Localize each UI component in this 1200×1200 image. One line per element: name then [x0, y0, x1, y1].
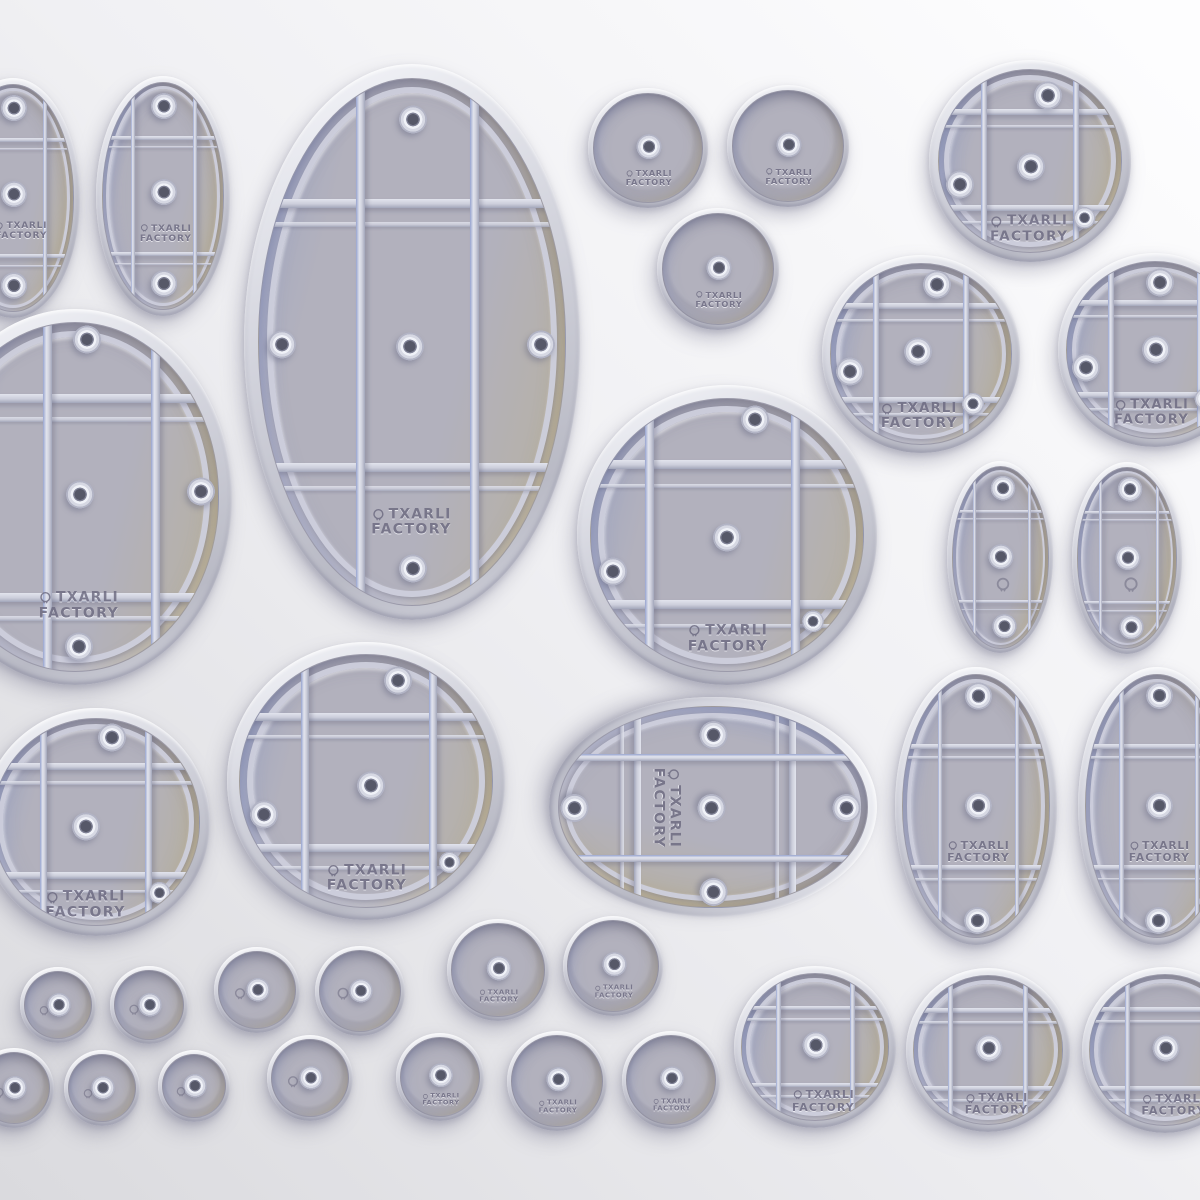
alien-head-icon — [990, 215, 1003, 228]
support-rib-horizontal — [789, 707, 796, 906]
alien-head-icon — [39, 592, 52, 605]
brand-logo: TXARLIFACTORY — [792, 1089, 855, 1114]
support-rib-horizontal — [953, 510, 1048, 513]
alien-head-icon — [140, 224, 149, 233]
brand-line1: TXARLI — [1114, 398, 1189, 413]
support-rib-horizontal — [0, 394, 218, 403]
support-rib-vertical — [1195, 675, 1200, 938]
magnet-hole — [691, 789, 729, 827]
support-rib-vertical — [948, 976, 953, 1124]
brand-logo: TXARLIFACTORY — [965, 1093, 1029, 1118]
magnet-hole — [146, 267, 181, 302]
base-dish — [114, 970, 184, 1040]
brand-word-2: FACTORY — [881, 417, 958, 432]
alien-head-icon — [128, 1004, 140, 1016]
support-rib-horizontal — [914, 1086, 1062, 1091]
support-rib-horizontal — [1086, 865, 1200, 870]
round-base-mini-b1-cut — [0, 1048, 54, 1128]
brand-word-2: FACTORY — [140, 234, 192, 244]
magnet-hole — [656, 1063, 689, 1096]
support-rib-stub — [1086, 878, 1200, 881]
support-rib-vertical — [776, 974, 781, 1120]
round-base-mini-a3 — [214, 947, 300, 1033]
support-rib-horizontal — [1078, 601, 1177, 604]
magnet-hole — [68, 322, 106, 359]
alien-head-icon — [1129, 841, 1139, 851]
base-dish: TXARLIFACTORY — [567, 920, 659, 1012]
base-floor: TXARLIFACTORY — [913, 975, 1063, 1125]
brand-word-2: FACTORY — [947, 852, 1010, 864]
magnet-hole — [984, 541, 1017, 574]
brand-word-2: FACTORY — [792, 1101, 855, 1113]
magnet-hole — [632, 131, 666, 165]
support-rib-horizontal — [1086, 744, 1200, 749]
brand-word-1: TXARLI — [1155, 1093, 1200, 1106]
support-rib-stub — [103, 146, 224, 148]
base-floor: TXARLIFACTORY — [258, 78, 566, 606]
support-rib-stub — [953, 518, 1048, 520]
support-rib-stub — [775, 707, 779, 906]
support-rib-vertical — [131, 83, 135, 310]
magnet-hole — [959, 904, 996, 939]
base-dish: TXARLIFACTORY — [593, 93, 703, 203]
brand-icon-mark — [287, 1073, 300, 1086]
alien-head-icon — [539, 1100, 545, 1106]
support-rib-horizontal — [0, 138, 73, 142]
brand-word-1: TXARLI — [63, 890, 126, 906]
round-base-grid-lower-left-cut: TXARLIFACTORY — [0, 708, 210, 936]
magnet-hole — [61, 477, 99, 515]
magnet-hole — [1137, 332, 1175, 370]
magnet-hole — [598, 949, 631, 982]
magnet-hole — [146, 176, 181, 211]
support-rib-horizontal — [591, 460, 864, 469]
brand-logo: TXARLIFACTORY — [765, 167, 812, 185]
alien-head-icon — [1114, 400, 1126, 412]
magnet-hole — [772, 129, 806, 163]
brand-line1: TXARLI — [39, 591, 119, 607]
base-floor: TXARLIFACTORY — [0, 718, 200, 927]
brand-logo: TXARLIFACTORY — [39, 591, 119, 622]
alien-head-icon — [947, 841, 957, 851]
base-dish — [319, 950, 401, 1032]
support-rib-horizontal — [0, 254, 73, 258]
support-rib-stub — [0, 781, 199, 785]
oval-base-large-left-cut: TXARLIFACTORY — [0, 309, 232, 685]
magnet-hole — [352, 768, 390, 806]
support-rib-stub — [1078, 519, 1177, 521]
brand-icon-mark — [234, 985, 247, 998]
magnet-hole — [708, 520, 746, 558]
magnet-hole — [263, 327, 301, 365]
brand-line1: TXARLI — [371, 507, 451, 523]
support-rib-horizontal — [903, 744, 1049, 749]
brand-icon-mark — [38, 1001, 49, 1012]
round-base-grid-lower-left-2: TXARLIFACTORY — [227, 642, 505, 920]
brand-logo: TXARLIFACTORY — [595, 985, 634, 1000]
magnet-hole — [425, 1060, 457, 1092]
base-dish: TXARLIFACTORY — [400, 1037, 480, 1117]
brand-word-2: FACTORY — [990, 229, 1068, 244]
base-dish: TXARLIFACTORY — [451, 923, 544, 1016]
brand-logo: TXARLIFACTORY — [881, 402, 958, 432]
oval-base-small-edge-left: TXARLIFACTORY — [0, 78, 80, 318]
support-rib-stub — [742, 1018, 888, 1021]
magnet-hole — [1111, 542, 1145, 576]
brand-icon-mark — [128, 1001, 140, 1013]
base-floor: TXARLIFACTORY — [938, 69, 1123, 254]
magnet-hole — [379, 663, 417, 701]
base-floor: TXARLIFACTORY — [741, 973, 889, 1121]
magnet-hole — [67, 809, 105, 847]
base-dish — [24, 971, 92, 1039]
brand-word-2: FACTORY — [688, 639, 768, 655]
brand-word-1: TXARLI — [1130, 398, 1189, 413]
alien-head-icon — [82, 1088, 93, 1099]
brand-word-2: FACTORY — [0, 231, 47, 241]
support-rib-vertical — [559, 754, 866, 761]
magnet-hole — [1148, 1031, 1185, 1068]
support-rib-vertical — [43, 85, 47, 312]
brand-logo: TXARLIFACTORY — [688, 623, 768, 654]
magnet-hole — [558, 789, 591, 827]
brand-line1: TXARLI — [990, 214, 1068, 229]
brand-line1: TXARLI — [45, 890, 125, 906]
magnet-hole — [146, 90, 181, 125]
brand-word-1: TXARLI — [897, 402, 957, 417]
alien-head-icon — [995, 577, 1011, 593]
support-rib-vertical — [301, 655, 309, 907]
round-base-mini-b2 — [64, 1050, 140, 1126]
brand-line1: TXARLI — [0, 221, 47, 231]
magnet-hole — [391, 329, 429, 367]
alien-head-icon — [336, 987, 350, 1001]
brand-word-2: FACTORY — [626, 178, 673, 187]
round-base-plain-top-2: TXARLIFACTORY — [727, 85, 849, 207]
support-rib-vertical — [470, 79, 479, 605]
support-rib-stub — [620, 707, 624, 906]
alien-head-icon — [327, 864, 340, 877]
magnet-hole — [1141, 789, 1177, 825]
oval-base-small-top: TXARLIFACTORY — [96, 76, 230, 316]
round-base-small-b5: TXARLIFACTORY — [396, 1033, 484, 1121]
brand-word-1: TXARLI — [56, 591, 119, 607]
magnet-hole — [798, 1028, 835, 1065]
brand-logo: TXARLIFACTORY — [1141, 1093, 1200, 1118]
oval-base-medium-right-1: TXARLIFACTORY — [895, 667, 1057, 945]
brand-logo: TXARLIFACTORY — [45, 890, 125, 921]
oval-base-mini-right-1 — [947, 461, 1053, 653]
support-rib-horizontal — [1078, 511, 1177, 514]
magnet-hole — [798, 608, 828, 638]
brand-logo: TXARLIFACTORY — [1129, 840, 1190, 864]
magnet-hole — [918, 267, 956, 305]
oval-base-large-top: TXARLIFACTORY — [244, 64, 580, 620]
support-rib-horizontal — [634, 707, 641, 906]
alien-head-icon — [965, 1094, 976, 1105]
brand-logo: TXARLIFACTORY — [327, 863, 407, 894]
brand-word-2: FACTORY — [539, 1107, 578, 1115]
support-rib-vertical — [1156, 468, 1159, 649]
brand-word-2: FACTORY — [327, 879, 407, 895]
brand-word-2: FACTORY — [1141, 1106, 1200, 1119]
base-dish: TXARLIFACTORY — [511, 1035, 603, 1127]
brand-word-1: TXARLI — [705, 623, 768, 639]
round-base-grid-center-large: TXARLIFACTORY — [577, 385, 877, 685]
support-rib-horizontal — [259, 199, 565, 208]
brand-word-1: TXARLI — [666, 785, 682, 848]
round-base-grid-bottom-3-cut: TXARLIFACTORY — [1082, 967, 1200, 1133]
magnet-hole — [522, 327, 560, 365]
base-floor: TXARLIFACTORY — [102, 82, 225, 311]
brand-logo: TXARLIFACTORY — [653, 1098, 691, 1113]
magnet-hole — [1141, 679, 1177, 715]
brand-word-2: FACTORY — [1114, 413, 1189, 428]
magnet-hole — [971, 1031, 1008, 1068]
brand-icon-mark — [82, 1084, 93, 1095]
brand-icon-mark — [1122, 577, 1139, 594]
magnet-hole — [0, 92, 32, 127]
magnet-hole — [960, 679, 997, 716]
brand-line1: TXARLI — [327, 863, 407, 879]
magnet-hole — [0, 269, 32, 304]
brand-word-2: FACTORY — [422, 1100, 459, 1107]
base-floor: TXARLIFACTORY — [902, 674, 1050, 938]
support-rib-horizontal — [1090, 1007, 1200, 1012]
brand-word-1: TXARLI — [389, 507, 452, 523]
round-base-small-b7: TXARLIFACTORY — [622, 1031, 720, 1129]
magnet-hole — [736, 402, 774, 440]
brand-word-2: FACTORY — [765, 177, 812, 186]
magnet-hole — [1141, 265, 1179, 303]
magnet-hole — [1191, 385, 1200, 415]
brand-line1: TXARLI — [688, 623, 768, 639]
brand-logo: TXARLIFACTORY — [1114, 398, 1189, 427]
support-rib-horizontal — [742, 1083, 888, 1088]
base-dish: TXARLIFACTORY — [732, 90, 844, 202]
base-dish: TXARLIFACTORY — [626, 1035, 716, 1125]
support-rib-stub — [1067, 315, 1200, 318]
brand-word-1: TXARLI — [151, 223, 192, 233]
support-rib-horizontal — [914, 1008, 1062, 1013]
brand-word-2: FACTORY — [479, 997, 519, 1005]
support-rib-stub — [0, 265, 73, 267]
brand-logo: TXARLIFACTORY — [422, 1093, 459, 1108]
support-rib-stub — [591, 484, 864, 489]
magnet-hole — [693, 716, 731, 754]
support-rib-vertical — [151, 323, 160, 670]
round-base-mini-b4 — [267, 1035, 353, 1121]
support-rib-vertical — [1015, 675, 1020, 937]
brand-logo: TXARLIFACTORY — [650, 768, 681, 848]
brand-logo: TXARLIFACTORY — [539, 1100, 578, 1115]
support-rib-vertical — [981, 70, 987, 253]
support-rib-stub — [914, 1021, 1062, 1024]
magnet-hole — [1113, 474, 1147, 508]
brand-logo: TXARLIFACTORY — [695, 290, 742, 308]
support-rib-stub — [903, 756, 1049, 759]
support-rib-vertical — [1125, 975, 1130, 1125]
support-rib-horizontal — [0, 763, 199, 770]
magnet-hole — [826, 789, 864, 827]
magnet-hole — [93, 720, 131, 758]
brand-logo: TXARLIFACTORY — [626, 169, 673, 187]
support-rib-stub — [103, 263, 224, 265]
support-rib-horizontal — [903, 865, 1049, 870]
magnet-hole — [1029, 78, 1067, 116]
support-rib-vertical — [193, 83, 197, 310]
alien-head-icon — [0, 222, 4, 231]
support-rib-stub — [831, 319, 1010, 322]
alien-head-icon — [38, 1005, 49, 1016]
support-rib-vertical — [1028, 467, 1031, 648]
support-rib-horizontal — [259, 463, 565, 472]
round-base-grid-row2-right-cut: TXARLIFACTORY — [1058, 253, 1200, 447]
round-base-mini-a2 — [110, 966, 188, 1044]
brand-icon-mark — [336, 986, 350, 1000]
alien-head-icon — [371, 508, 384, 521]
base-dish — [68, 1054, 136, 1122]
support-rib-horizontal — [103, 252, 224, 256]
base-dish — [218, 951, 296, 1029]
magnet-hole — [435, 849, 465, 879]
brand-logo: TXARLIFACTORY — [479, 989, 519, 1004]
magnet-hole — [394, 551, 432, 589]
product-render-canvas: TXARLIFACTORYTXARLIFACTORYTXARLIFACTORYT… — [0, 0, 1200, 1200]
brand-line1: TXARLI — [1141, 1093, 1200, 1106]
support-rib-horizontal — [103, 136, 224, 140]
support-rib-vertical — [356, 79, 365, 605]
base-floor: TXARLIFACTORY — [239, 654, 493, 908]
brand-word-2: FACTORY — [650, 768, 666, 848]
magnet-hole — [482, 953, 515, 986]
oval-base-medium-right-2-cut: TXARLIFACTORY — [1078, 667, 1200, 945]
round-base-mini-b3 — [158, 1050, 230, 1122]
brand-word-2: FACTORY — [371, 523, 451, 539]
brand-word-2: FACTORY — [695, 300, 742, 309]
magnet-hole — [1070, 204, 1100, 234]
support-rib-vertical — [1108, 262, 1114, 438]
support-rib-horizontal — [240, 713, 492, 721]
brand-icon-mark — [0, 1084, 5, 1096]
magnet-hole — [1115, 612, 1149, 646]
support-rib-horizontal — [742, 1006, 888, 1011]
alien-head-icon — [0, 1087, 5, 1099]
brand-word-1: TXARLI — [344, 863, 407, 879]
brand-line1: TXARLI — [666, 768, 682, 848]
brand-logo: TXARLIFACTORY — [0, 221, 47, 241]
base-floor: TXARLIFACTORY — [558, 706, 867, 907]
support-rib-stub — [1086, 756, 1200, 759]
support-rib-vertical — [559, 855, 866, 862]
magnet-hole — [958, 390, 988, 420]
brand-logo: TXARLIFACTORY — [947, 840, 1010, 865]
support-rib-stub — [1090, 1020, 1200, 1023]
alien-head-icon — [46, 891, 59, 904]
support-rib-stub — [0, 148, 73, 150]
support-rib-horizontal — [0, 872, 199, 879]
magnet-hole — [245, 797, 283, 835]
support-rib-stub — [903, 878, 1049, 881]
magnet-hole — [1140, 904, 1176, 938]
round-base-small-a5: TXARLIFACTORY — [447, 919, 549, 1021]
support-rib-vertical — [1119, 675, 1124, 938]
support-rib-stub — [939, 125, 1122, 128]
support-rib-horizontal — [953, 600, 1048, 603]
magnet-hole — [0, 178, 32, 213]
brand-line1: TXARLI — [140, 223, 192, 233]
brand-icon-mark — [995, 577, 1011, 593]
alien-head-icon — [881, 403, 894, 416]
brand-logo: TXARLIFACTORY — [371, 507, 451, 538]
magnet-hole — [345, 976, 377, 1008]
round-base-grid-top-right: TXARLIFACTORY — [929, 60, 1131, 262]
alien-head-icon — [792, 1090, 802, 1100]
brand-line1: TXARLI — [881, 402, 958, 417]
magnet-hole — [960, 789, 997, 826]
support-rib-vertical — [1099, 468, 1102, 649]
brand-icon-mark — [175, 1082, 186, 1093]
brand-word-2: FACTORY — [595, 992, 634, 1000]
magnet-hole — [988, 611, 1021, 644]
round-base-grid-bottom-1: TXARLIFACTORY — [734, 966, 896, 1128]
alien-head-icon — [234, 987, 247, 1000]
alien-head-icon — [667, 768, 680, 781]
round-base-grid-bottom-2: TXARLIFACTORY — [906, 968, 1070, 1132]
oval-base-horizontal-center: TXARLIFACTORY — [549, 697, 877, 917]
magnet-hole — [145, 879, 175, 909]
magnet-hole — [899, 334, 937, 372]
support-rib-stub — [0, 417, 218, 422]
support-rib-vertical — [973, 467, 976, 648]
base-dish — [162, 1054, 226, 1118]
base-floor: TXARLIFACTORY — [590, 398, 865, 673]
alien-head-icon — [287, 1075, 300, 1088]
alien-head-icon — [175, 1086, 186, 1097]
brand-logo: TXARLIFACTORY — [140, 223, 192, 243]
alien-head-icon — [688, 624, 701, 637]
magnet-hole — [1067, 350, 1105, 388]
magnet-hole — [60, 629, 98, 667]
base-dish: TXARLIFACTORY — [662, 213, 774, 325]
round-base-small-b6: TXARLIFACTORY — [507, 1031, 607, 1131]
magnet-hole — [1012, 149, 1050, 187]
magnet-hole — [702, 252, 736, 286]
brand-word-2: FACTORY — [1129, 852, 1190, 864]
oval-base-mini-right-2 — [1072, 462, 1182, 654]
round-base-small-a6: TXARLIFACTORY — [563, 916, 663, 1016]
support-rib-stub — [240, 735, 492, 740]
magnet-hole — [941, 167, 979, 205]
alien-head-icon — [595, 985, 601, 991]
brand-word-2: FACTORY — [45, 905, 125, 921]
support-rib-vertical — [938, 675, 943, 937]
brand-word-1: TXARLI — [1007, 214, 1068, 229]
round-base-plain-top-3: TXARLIFACTORY — [657, 208, 779, 330]
round-base-plain-top-1: TXARLIFACTORY — [588, 88, 708, 208]
round-base-mini-a4 — [315, 946, 405, 1036]
magnet-hole — [542, 1064, 575, 1097]
alien-head-icon — [1142, 1094, 1153, 1105]
brand-logo: TXARLIFACTORY — [990, 214, 1068, 245]
support-rib-stub — [259, 486, 565, 491]
brand-word-1: TXARLI — [7, 221, 48, 231]
brand-word-2: FACTORY — [39, 606, 119, 622]
brand-word-2: FACTORY — [653, 1106, 691, 1113]
magnet-hole — [986, 473, 1019, 506]
magnet-hole — [394, 102, 432, 140]
magnet-hole — [594, 554, 632, 592]
